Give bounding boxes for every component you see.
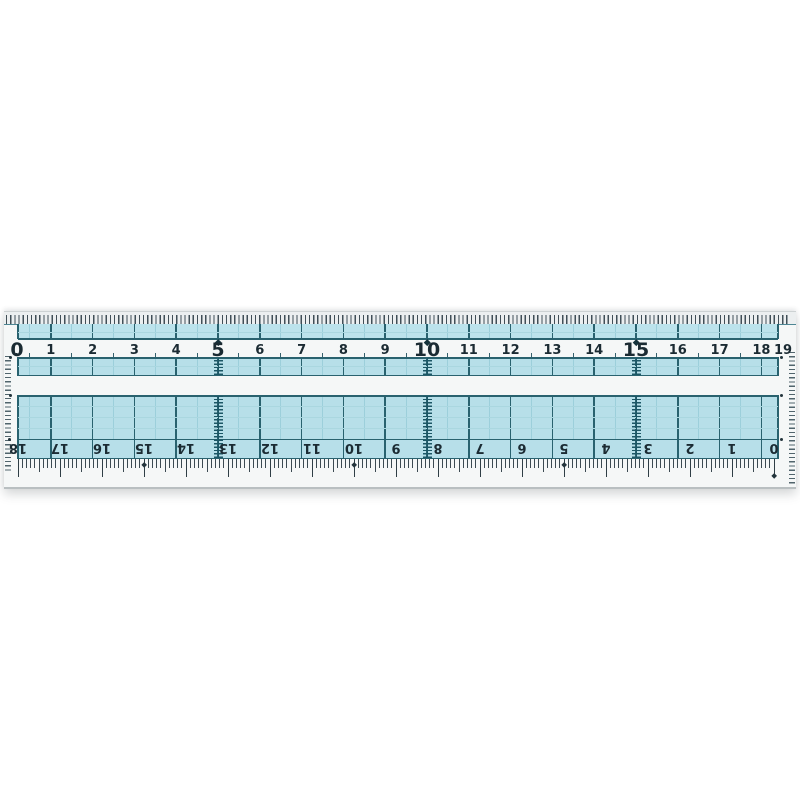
number-strip-tick	[615, 353, 616, 357]
bottom-mm-tick	[446, 459, 447, 468]
bottom-mm-tick	[139, 459, 140, 468]
grid-rule-faint	[18, 406, 778, 407]
bottom-mm-tick	[396, 459, 397, 477]
bottom-mm-tick	[496, 459, 497, 468]
bottom-mm-tick	[723, 459, 724, 468]
bottom-mm-tick	[627, 459, 628, 472]
bottom-mm-tick	[652, 459, 653, 468]
corner-dot	[780, 356, 783, 359]
bottom-mm-tick	[690, 459, 691, 477]
bottom-mm-tick	[727, 459, 728, 468]
bottom-mm-tick	[328, 459, 329, 468]
top-scale-label: 10	[414, 339, 440, 361]
bottom-scale-label: 17	[51, 440, 69, 455]
top-scale-label: 1	[46, 343, 55, 358]
top-scale-label: 5	[211, 339, 224, 361]
bottom-mm-tick	[467, 459, 468, 468]
grid-rule-faint	[18, 417, 778, 418]
bottom-mm-tick	[610, 459, 611, 468]
bottom-mm-tick	[55, 459, 56, 468]
bottom-mm-tick	[454, 459, 455, 468]
top-scale-label: 0	[10, 339, 23, 361]
top-scale-label: 4	[172, 343, 181, 358]
bottom-mm-tick	[421, 459, 422, 468]
bottom-scale-label: 13	[219, 440, 237, 455]
bottom-mm-tick	[114, 459, 115, 468]
bottom-mm-tick	[337, 459, 338, 468]
bottom-mm-tick	[30, 459, 31, 468]
number-strip-tick	[447, 353, 448, 357]
bottom-scale-label: 10	[345, 440, 363, 455]
bottom-mm-tick	[215, 459, 216, 468]
bottom-mm-tick	[480, 459, 481, 477]
bottom-mm-tick	[312, 459, 313, 477]
bottom-mm-tick	[173, 459, 174, 468]
top-scale-label: 6	[255, 343, 264, 358]
bottom-mm-tick	[102, 459, 103, 477]
bottom-mm-tick	[576, 459, 577, 468]
bottom-mm-tick	[475, 459, 476, 468]
top-scale-label: 15	[623, 339, 649, 361]
bottom-mm-tick	[417, 459, 418, 472]
bottom-mm-tick	[664, 459, 665, 468]
bottom-mm-tick	[643, 459, 644, 468]
bottom-mm-tick	[295, 459, 296, 468]
top-scale-label: 9	[381, 343, 390, 358]
bottom-mm-tick	[72, 459, 73, 468]
bottom-mm-tick	[85, 459, 86, 468]
grid-rule-faint	[18, 428, 778, 429]
bottom-mm-tick	[286, 459, 287, 468]
bottom-mm-tick	[177, 459, 178, 468]
bottom-scale-label: 14	[177, 440, 195, 455]
bottom-mm-tick	[370, 459, 371, 468]
bottom-mm-tick	[349, 459, 350, 468]
bottom-scale-label: 12	[261, 440, 279, 455]
zipper-hatch-column	[214, 358, 223, 375]
bottom-scale-label: 3	[643, 440, 652, 455]
bottom-mm-tick	[223, 459, 224, 468]
bottom-mm-tick	[589, 459, 590, 468]
bottom-scale-label: 1	[727, 440, 736, 455]
bottom-scale-label: 4	[601, 440, 610, 455]
bottom-mm-tick	[387, 459, 388, 468]
bottom-mm-tick	[160, 459, 161, 468]
bottom-mm-tick	[706, 459, 707, 468]
number-strip-tick	[406, 353, 407, 357]
bottom-mm-tick	[123, 459, 124, 472]
bottom-mm-tick	[135, 459, 136, 468]
bottom-mm-tick	[412, 459, 413, 468]
bottom-mm-tick	[106, 459, 107, 468]
number-strip-tick	[155, 353, 156, 357]
bottom-mm-tick	[152, 459, 153, 468]
bottom-mm-tick	[274, 459, 275, 468]
bottom-mm-tick	[303, 459, 304, 468]
grid-rule-faint	[18, 332, 778, 333]
bottom-mm-tick	[39, 459, 40, 472]
bottom-mm-tick	[488, 459, 489, 468]
bottom-mm-tick	[366, 459, 367, 468]
bottom-mm-tick	[383, 459, 384, 468]
bottom-mm-tick	[534, 459, 535, 468]
bottom-mm-tick	[585, 459, 586, 472]
bottom-mm-tick	[127, 459, 128, 468]
bottom-mm-tick	[81, 459, 82, 472]
bottom-mm-tick	[744, 459, 745, 468]
corner-dot	[780, 394, 783, 397]
top-scale-label: 7	[297, 343, 306, 358]
bottom-mm-tick	[702, 459, 703, 468]
bottom-mm-tick	[429, 459, 430, 468]
bottom-mm-tick	[93, 459, 94, 468]
bottom-mm-tick	[463, 459, 464, 468]
bottom-mm-tick	[517, 459, 518, 468]
bottom-mm-tick	[341, 459, 342, 468]
bottom-mm-tick	[450, 459, 451, 468]
bottom-mm-tick	[333, 459, 334, 472]
bottom-mm-tick	[165, 459, 166, 472]
bottom-mm-tick	[236, 459, 237, 468]
bottom-mm-tick	[257, 459, 258, 468]
bottom-mm-tick	[97, 459, 98, 468]
bottom-mm-tick	[43, 459, 44, 468]
bottom-mm-tick	[22, 459, 23, 468]
bottom-mm-tick	[186, 459, 187, 477]
bottom-mm-tick	[26, 459, 27, 468]
bottom-mm-tick	[492, 459, 493, 468]
bottom-mm-tick	[232, 459, 233, 468]
bottom-mm-tick	[635, 459, 636, 468]
bottom-mm-tick	[593, 459, 594, 468]
number-strip-tick	[489, 353, 490, 357]
bottom-scale-label: 9	[391, 440, 400, 455]
number-strip-tick	[113, 353, 114, 357]
top-scale-label: 18	[752, 343, 770, 358]
bottom-scale-label: 0	[769, 440, 778, 455]
bottom-mm-tick	[601, 459, 602, 468]
bottom-arrow-marker	[561, 462, 567, 468]
bottom-mm-tick	[631, 459, 632, 468]
bottom-mm-tick	[547, 459, 548, 468]
top-scale-label: 16	[669, 343, 687, 358]
number-strip-tick	[29, 353, 30, 357]
bottom-mm-tick	[169, 459, 170, 468]
top-scale-label: 13	[543, 343, 561, 358]
bottom-mm-tick	[543, 459, 544, 472]
grid-rule-faint	[18, 366, 778, 367]
number-strip-tick	[238, 353, 239, 357]
number-strip-tick	[364, 353, 365, 357]
zipper-hatch-column	[423, 358, 432, 375]
bottom-mm-tick	[572, 459, 573, 468]
number-strip-tick	[531, 353, 532, 357]
bottom-mm-tick	[249, 459, 250, 472]
bottom-mm-tick	[64, 459, 65, 468]
bottom-mm-tick	[761, 459, 762, 468]
bottom-mm-tick	[597, 459, 598, 468]
right-edge-scale	[789, 352, 795, 484]
bottom-mm-tick	[501, 459, 502, 472]
bottom-scale-label: 7	[475, 440, 484, 455]
bottom-arrow-marker	[351, 462, 357, 468]
bottom-mm-tick	[505, 459, 506, 468]
bottom-arrow-marker	[771, 473, 777, 479]
corner-dot	[8, 438, 11, 441]
bottom-mm-tick	[530, 459, 531, 468]
bottom-scale-label: 16	[93, 440, 111, 455]
bottom-mm-tick	[307, 459, 308, 468]
top-scale-label: 19	[774, 343, 792, 358]
bottom-mm-tick	[509, 459, 510, 468]
number-strip-tick	[573, 353, 574, 357]
bottom-mm-tick	[324, 459, 325, 468]
bottom-scale-label: 15	[135, 440, 153, 455]
number-strip-tick	[197, 353, 198, 357]
bottom-mm-tick	[433, 459, 434, 468]
bottom-mm-tick	[769, 459, 770, 468]
bottom-scale-label: 11	[303, 440, 321, 455]
bottom-mm-tick	[110, 459, 111, 468]
bottom-mm-tick	[614, 459, 615, 468]
bottom-mm-tick	[148, 459, 149, 468]
top-scale-label: 14	[585, 343, 603, 358]
bottom-mm-tick	[118, 459, 119, 468]
bottom-mm-tick	[669, 459, 670, 472]
number-strip-tick	[740, 353, 741, 357]
bottom-mm-tick	[555, 459, 556, 468]
bottom-mm-tick	[18, 459, 19, 477]
bottom-mm-tick	[270, 459, 271, 477]
bottom-mm-tick	[513, 459, 514, 468]
bottom-mm-tick	[404, 459, 405, 468]
number-strip-tick	[71, 353, 72, 357]
bottom-mm-tick	[156, 459, 157, 468]
bottom-mm-tick	[400, 459, 401, 468]
bottom-scale-label: 18	[9, 440, 27, 455]
bottom-mm-tick	[681, 459, 682, 468]
bottom-mm-tick	[299, 459, 300, 468]
bottom-mm-tick	[622, 459, 623, 468]
bottom-mm-tick	[282, 459, 283, 468]
bottom-mm-tick	[408, 459, 409, 468]
bottom-mm-tick	[757, 459, 758, 468]
top-scale-label: 3	[130, 343, 139, 358]
bottom-mm-tick	[753, 459, 754, 472]
bottom-mm-tick	[34, 459, 35, 468]
bottom-mm-tick	[639, 459, 640, 468]
number-strip-tick	[280, 353, 281, 357]
bottom-mm-tick	[732, 459, 733, 477]
bottom-mm-tick	[68, 459, 69, 468]
bottom-mm-tick	[538, 459, 539, 468]
bottom-mm-tick	[211, 459, 212, 468]
bottom-scale-label: 5	[559, 440, 568, 455]
page-background: { "image": { "description": "Product pho…	[0, 0, 800, 800]
bottom-mm-tick	[219, 459, 220, 468]
bottom-mm-tick	[660, 459, 661, 468]
bottom-mm-tick	[580, 459, 581, 468]
bottom-mm-tick	[484, 459, 485, 468]
zipper-hatch-column	[423, 396, 432, 458]
bottom-mm-tick	[425, 459, 426, 468]
bottom-scale-label: 2	[685, 440, 694, 455]
bottom-mm-tick	[391, 459, 392, 468]
bottom-mm-tick	[685, 459, 686, 468]
bottom-mm-tick	[442, 459, 443, 468]
bottom-mm-tick	[253, 459, 254, 468]
bottom-mm-tick	[673, 459, 674, 468]
bottom-mm-tick	[345, 459, 346, 468]
bottom-mm-tick	[765, 459, 766, 468]
bottom-mm-tick	[228, 459, 229, 477]
bottom-mm-tick	[559, 459, 560, 468]
bottom-mm-tick	[261, 459, 262, 468]
corner-dot	[780, 438, 783, 441]
bottom-mm-tick	[459, 459, 460, 472]
bottom-mm-tick	[316, 459, 317, 468]
bottom-mm-tick	[291, 459, 292, 472]
bottom-mm-tick	[198, 459, 199, 468]
bottom-mm-tick	[618, 459, 619, 468]
grid-rule-dark	[18, 375, 778, 377]
bottom-mm-tick	[551, 459, 552, 468]
bottom-mm-tick	[181, 459, 182, 468]
bottom-mm-tick	[375, 459, 376, 472]
bottom-mm-tick	[60, 459, 61, 477]
bottom-mm-tick	[131, 459, 132, 468]
top-scale-label: 8	[339, 343, 348, 358]
bottom-mm-tick	[194, 459, 195, 468]
bottom-mm-tick	[190, 459, 191, 468]
bottom-mm-tick	[89, 459, 90, 468]
grid-rule-dark	[18, 338, 778, 340]
bottom-mm-tick	[748, 459, 749, 468]
bottom-mm-tick	[656, 459, 657, 468]
bottom-mm-tick	[207, 459, 208, 472]
bottom-mm-tick	[711, 459, 712, 472]
ruler: KUTSUWA 01234567891011121314151617181918…	[4, 311, 796, 489]
bottom-mm-tick	[358, 459, 359, 468]
bottom-arrow-marker	[141, 462, 147, 468]
bottom-mm-tick	[47, 459, 48, 468]
number-strip-tick	[656, 353, 657, 357]
bottom-mm-tick	[522, 459, 523, 477]
grid-rule-dark	[18, 395, 778, 397]
top-scale-label: 12	[502, 343, 520, 358]
bottom-mm-tick	[648, 459, 649, 477]
bottom-mm-tick	[526, 459, 527, 468]
corner-dot	[9, 394, 12, 397]
bottom-mm-tick	[740, 459, 741, 468]
bottom-mm-tick	[606, 459, 607, 477]
top-scale-label: 2	[88, 343, 97, 358]
top-edge-strip	[4, 312, 796, 324]
number-strip-tick	[322, 353, 323, 357]
bottom-mm-tick	[698, 459, 699, 468]
bottom-mm-tick	[202, 459, 203, 468]
bottom-mm-tick	[694, 459, 695, 468]
zipper-hatch-column	[632, 358, 641, 375]
bottom-mm-tick	[362, 459, 363, 468]
bottom-mm-tick	[244, 459, 245, 468]
bottom-mm-tick	[471, 459, 472, 468]
top-scale-label: 11	[460, 343, 478, 358]
bottom-mm-tick	[265, 459, 266, 468]
bottom-scale-label: 6	[517, 440, 526, 455]
bottom-mm-tick	[278, 459, 279, 468]
bottom-mm-tick	[736, 459, 737, 468]
bottom-mm-tick	[677, 459, 678, 468]
bottom-mm-tick	[715, 459, 716, 468]
top-edge-mm-ticks	[6, 315, 788, 324]
top-scale-label: 17	[711, 343, 729, 358]
bottom-mm-tick	[438, 459, 439, 477]
bottom-mm-tick	[719, 459, 720, 468]
bottom-mm-tick	[379, 459, 380, 468]
number-strip-tick	[698, 353, 699, 357]
bottom-mm-tick	[76, 459, 77, 468]
zero-dot	[15, 353, 18, 356]
bottom-mm-tick	[320, 459, 321, 468]
bottom-mm-tick	[240, 459, 241, 468]
bottom-scale-label: 8	[433, 440, 442, 455]
zipper-hatch-column	[632, 396, 641, 458]
bottom-mm-tick	[568, 459, 569, 468]
bottom-mm-tick	[51, 459, 52, 468]
